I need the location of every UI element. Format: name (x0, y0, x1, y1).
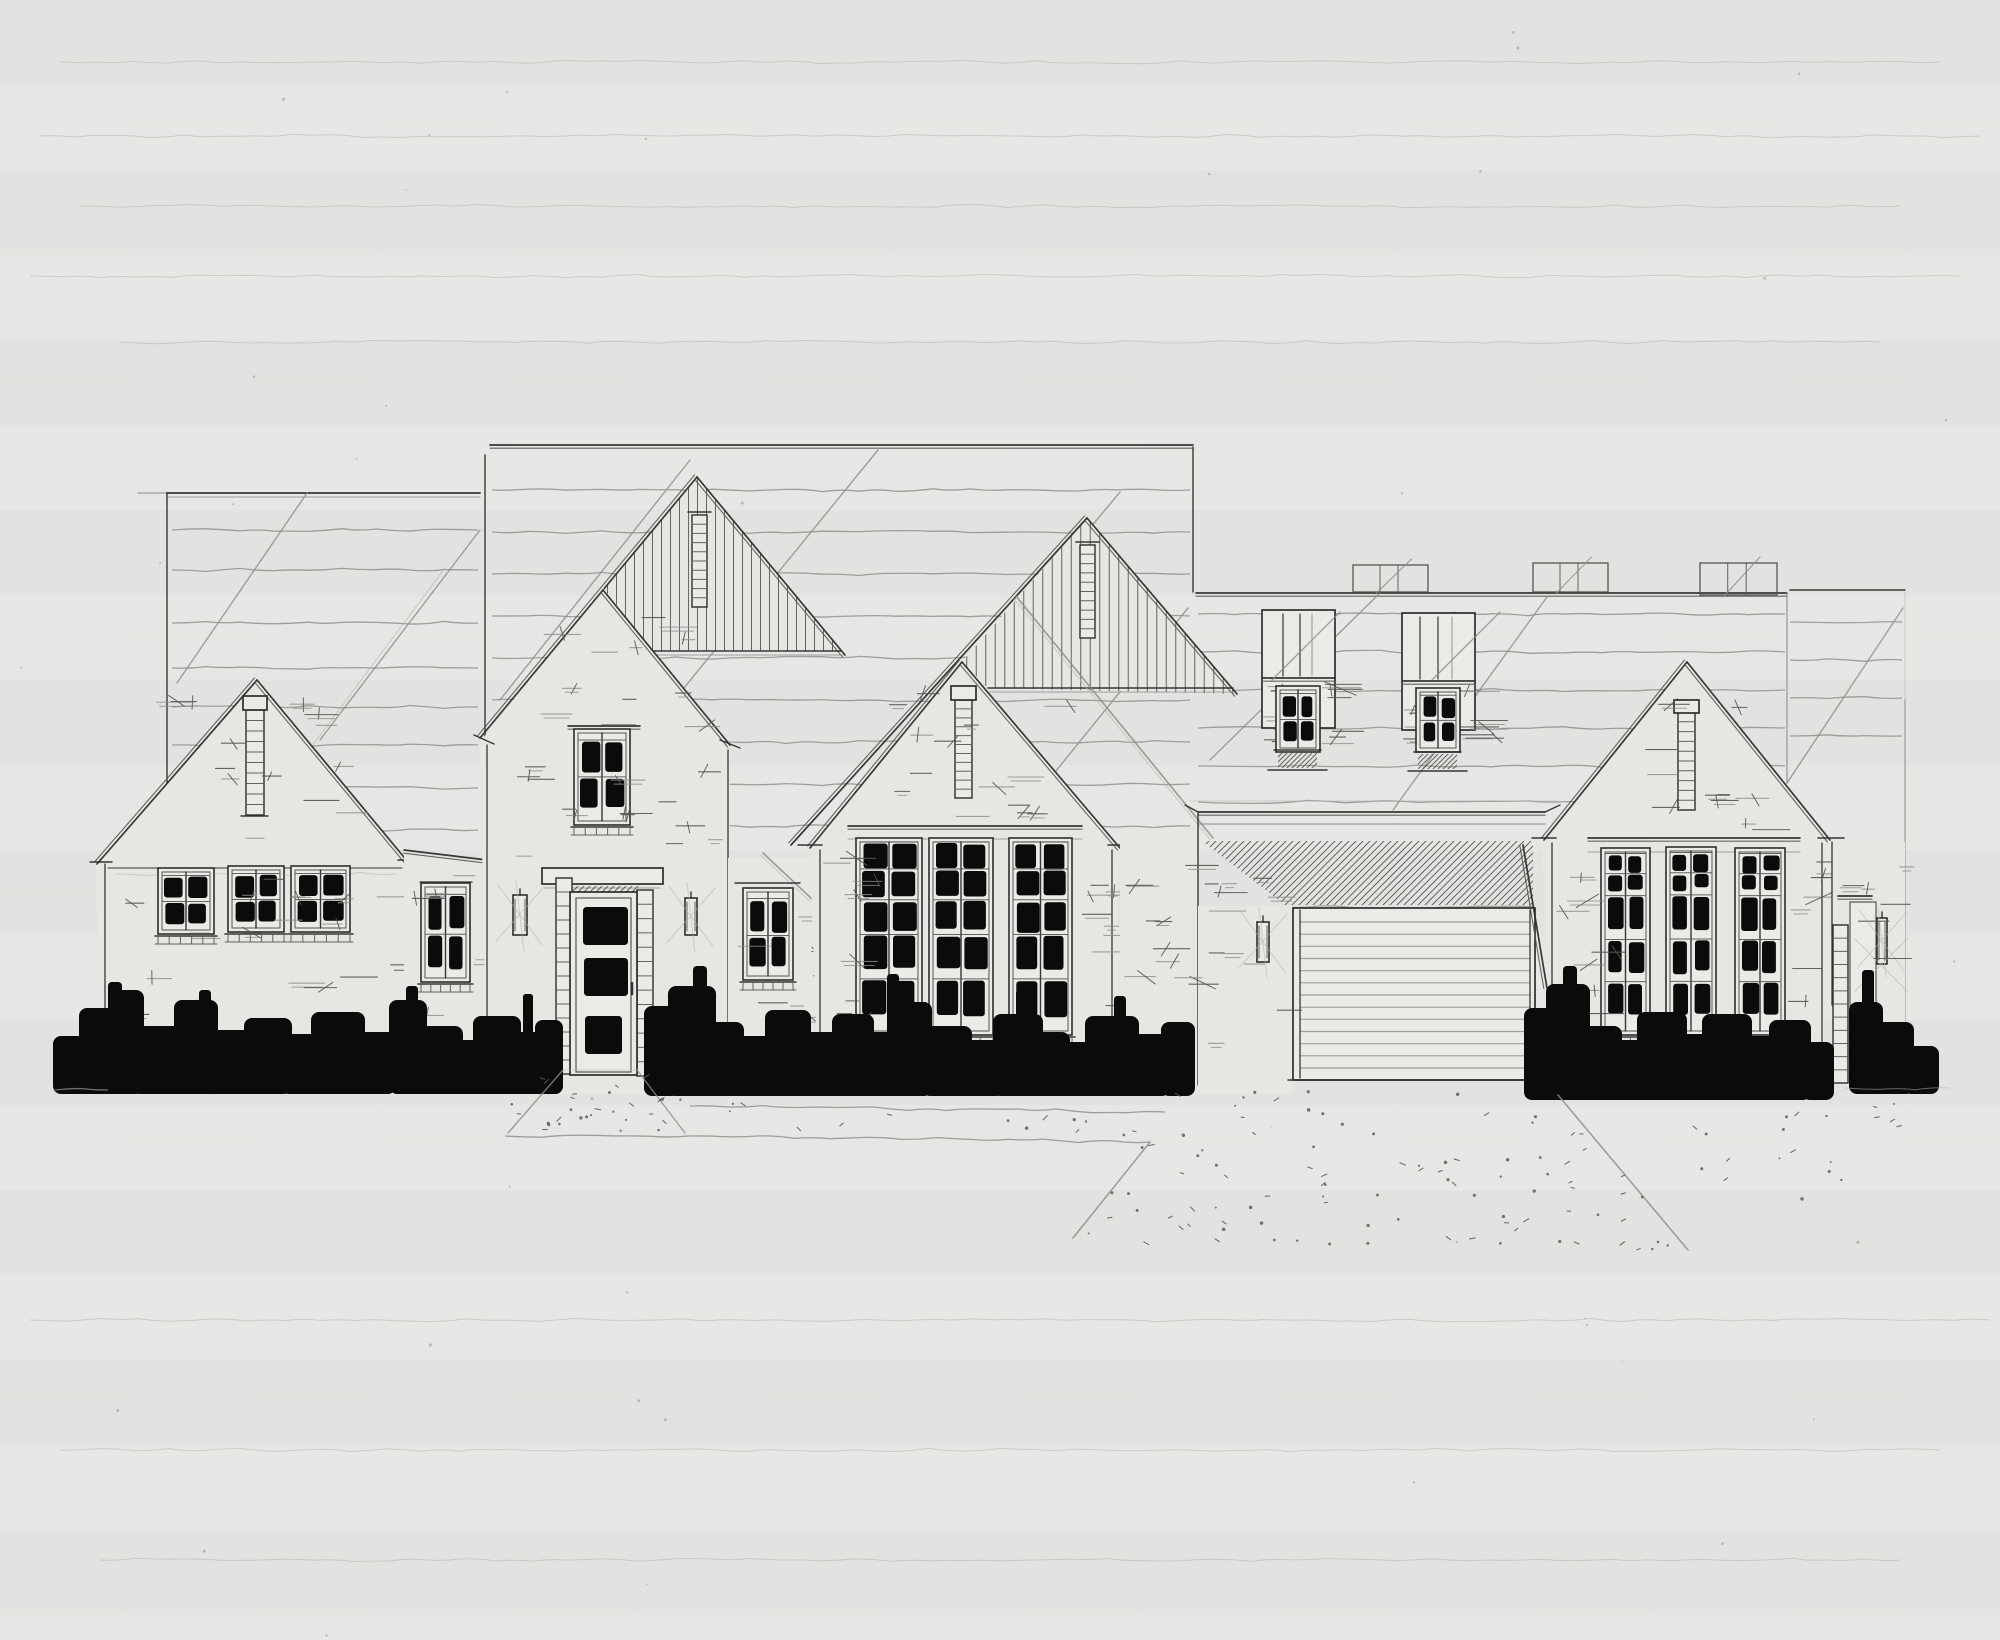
entry-siding-dormer (601, 475, 845, 657)
architectural-elevation-sheet (0, 0, 2000, 1640)
elevation-drawing (0, 0, 2000, 1640)
